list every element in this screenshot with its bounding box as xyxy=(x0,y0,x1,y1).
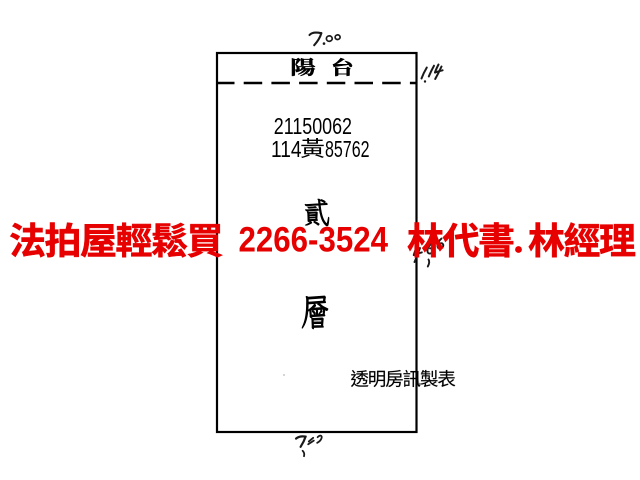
svg-text:2266-3524: 2266-3524 xyxy=(239,220,389,260)
svg-text:85762: 85762 xyxy=(325,136,370,162)
svg-text:114: 114 xyxy=(271,136,302,162)
